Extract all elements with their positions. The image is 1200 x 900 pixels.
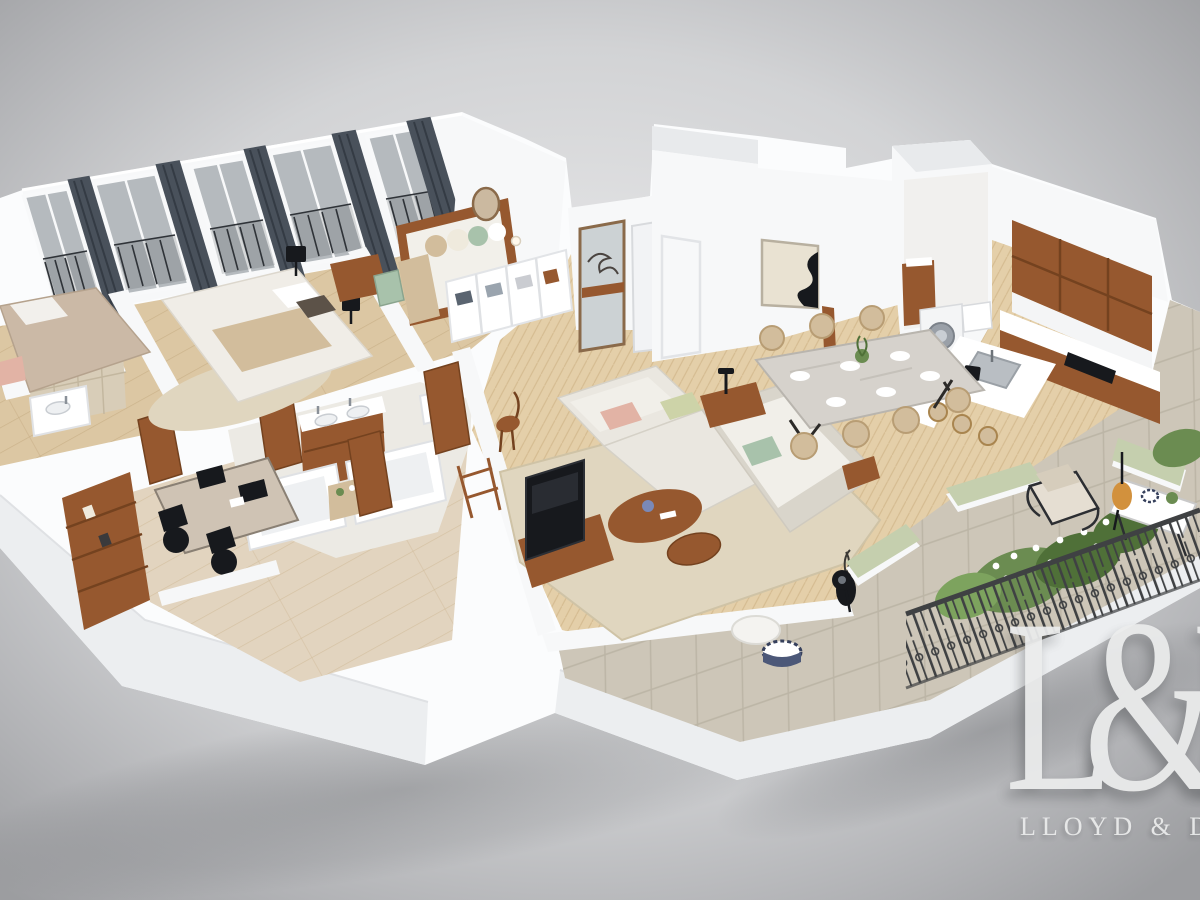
table-flowers <box>1166 492 1178 504</box>
striped-vase <box>1142 490 1158 502</box>
abstract-wall-art <box>762 240 818 308</box>
desk-chair <box>374 270 404 306</box>
towel-stack <box>962 302 992 332</box>
bar-stool-1 <box>929 403 947 421</box>
floor-plan-illustration <box>0 0 1200 900</box>
vase-flowers-blue <box>642 500 654 512</box>
wall-sconce <box>512 237 521 246</box>
bar-stool-2 <box>953 415 971 433</box>
entry-closet-block <box>652 126 758 362</box>
round-wall-mirror <box>473 188 499 220</box>
floor-plan-render-canvas: { "watermark": { "monogram": "L&D", "wor… <box>0 0 1200 900</box>
bar-stool-3 <box>979 427 997 445</box>
